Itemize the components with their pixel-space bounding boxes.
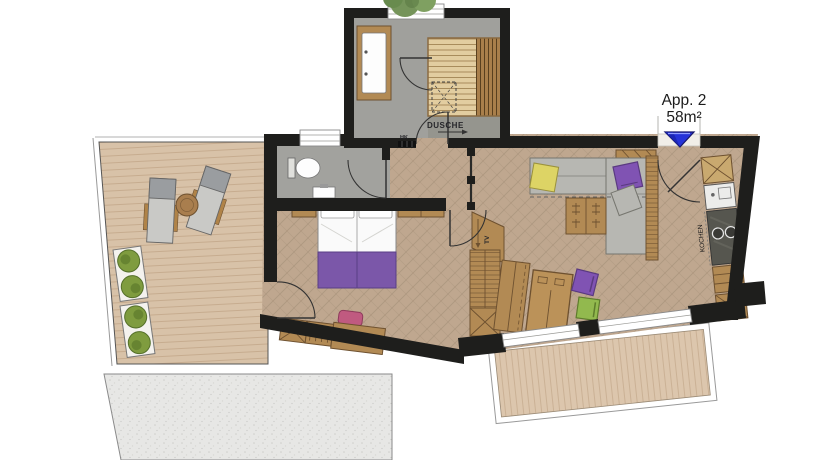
side-table (176, 194, 198, 216)
vanity (357, 26, 391, 100)
double-bed (318, 200, 396, 288)
wc-sink (313, 187, 335, 198)
toilet (296, 158, 320, 178)
radiator-label: HK (400, 135, 408, 141)
coffee-table (566, 198, 606, 234)
terrace (93, 137, 268, 366)
dining-chair-green (576, 297, 600, 321)
yellow-cushion (530, 163, 559, 192)
sauna (428, 38, 502, 116)
slat-divider (646, 156, 658, 260)
cooktop-burner (712, 227, 724, 239)
gravel-area (104, 374, 392, 460)
shower-label: DUSCHE (427, 121, 464, 130)
wash-basin (362, 33, 386, 93)
floor-plan: TV TV (0, 0, 840, 460)
window (300, 130, 340, 146)
apartment-name: App. 2 (662, 92, 707, 109)
apartment-area: 58m² (666, 109, 701, 126)
dining-chair-purple (572, 269, 599, 296)
tv-panel-label: TV (484, 235, 491, 244)
floor-plan-drawing: TV TV (0, 0, 840, 460)
toilet-tank (288, 158, 295, 178)
